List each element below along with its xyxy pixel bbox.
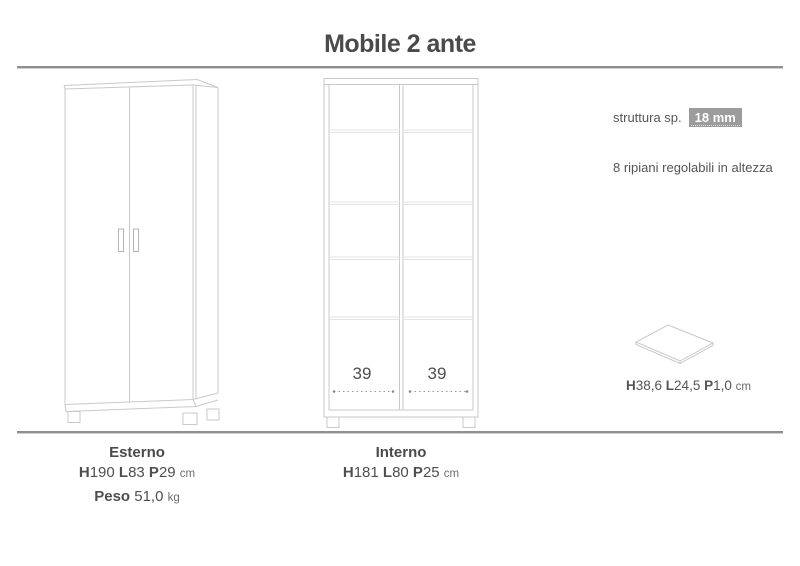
shelf-dims-unit: cm — [736, 381, 751, 393]
spec-sheet-page: Mobile 2 ante — [0, 0, 800, 566]
interior-h-label: H — [343, 464, 354, 481]
interior-dimensions-block: Interno H181 L80 P25 cm — [301, 444, 501, 481]
exterior-feet — [68, 409, 219, 425]
weight-label: Peso — [94, 488, 130, 505]
interior-heading: Interno — [301, 444, 501, 461]
adjustable-shelves-note: 8 ripiani regolabili in altezza — [613, 160, 773, 175]
structure-thickness-label: struttura sp. — [613, 110, 682, 125]
interior-width-left: 39 — [339, 364, 385, 384]
exterior-heading: Esterno — [37, 444, 237, 461]
shelf-p-value: 1,0 — [713, 378, 732, 393]
shelf-h-value: 38,6 — [636, 378, 662, 393]
door-handles — [119, 229, 139, 252]
exterior-l-label: L — [119, 464, 128, 481]
interior-dims-unit: cm — [444, 468, 459, 480]
shelf-panel-drawing — [636, 325, 713, 364]
interior-dimensions: H181 L80 P25 cm — [301, 464, 501, 481]
exterior-h-value: 190 — [90, 464, 115, 481]
shelf-l-label: L — [666, 378, 674, 393]
weight-value: 51,0 — [134, 488, 163, 505]
interior-h-value: 181 — [354, 464, 379, 481]
weight-row: Peso 51,0 kg — [37, 488, 237, 505]
exterior-l-value: 83 — [128, 464, 145, 481]
exterior-dimensions-block: Esterno H190 L83 P29 cm Peso 51,0 kg — [37, 444, 237, 505]
structure-thickness-badge: 18 mm — [689, 108, 742, 127]
exterior-p-value: 29 — [159, 464, 176, 481]
interior-l-label: L — [383, 464, 392, 481]
shelf-h-label: H — [626, 378, 636, 393]
interior-p-value: 25 — [423, 464, 440, 481]
exterior-h-label: H — [79, 464, 90, 481]
shelf-p-label: P — [704, 378, 713, 393]
weight-unit: kg — [168, 492, 180, 504]
interior-width-right: 39 — [414, 364, 460, 384]
interior-feet — [327, 417, 475, 428]
cabinet-exterior-drawing — [64, 80, 219, 425]
exterior-p-label: P — [149, 464, 159, 481]
shelf-panel-dimensions: H38,6 L24,5 P1,0 cm — [626, 378, 751, 393]
exterior-dims-unit: cm — [180, 468, 195, 480]
structure-thickness-row: struttura sp. 18 mm — [613, 107, 742, 127]
shelf-lines — [329, 130, 473, 320]
shelf-l-value: 24,5 — [674, 378, 700, 393]
interior-p-label: P — [413, 464, 423, 481]
interior-l-value: 80 — [392, 464, 409, 481]
exterior-dimensions: H190 L83 P29 cm — [37, 464, 237, 481]
